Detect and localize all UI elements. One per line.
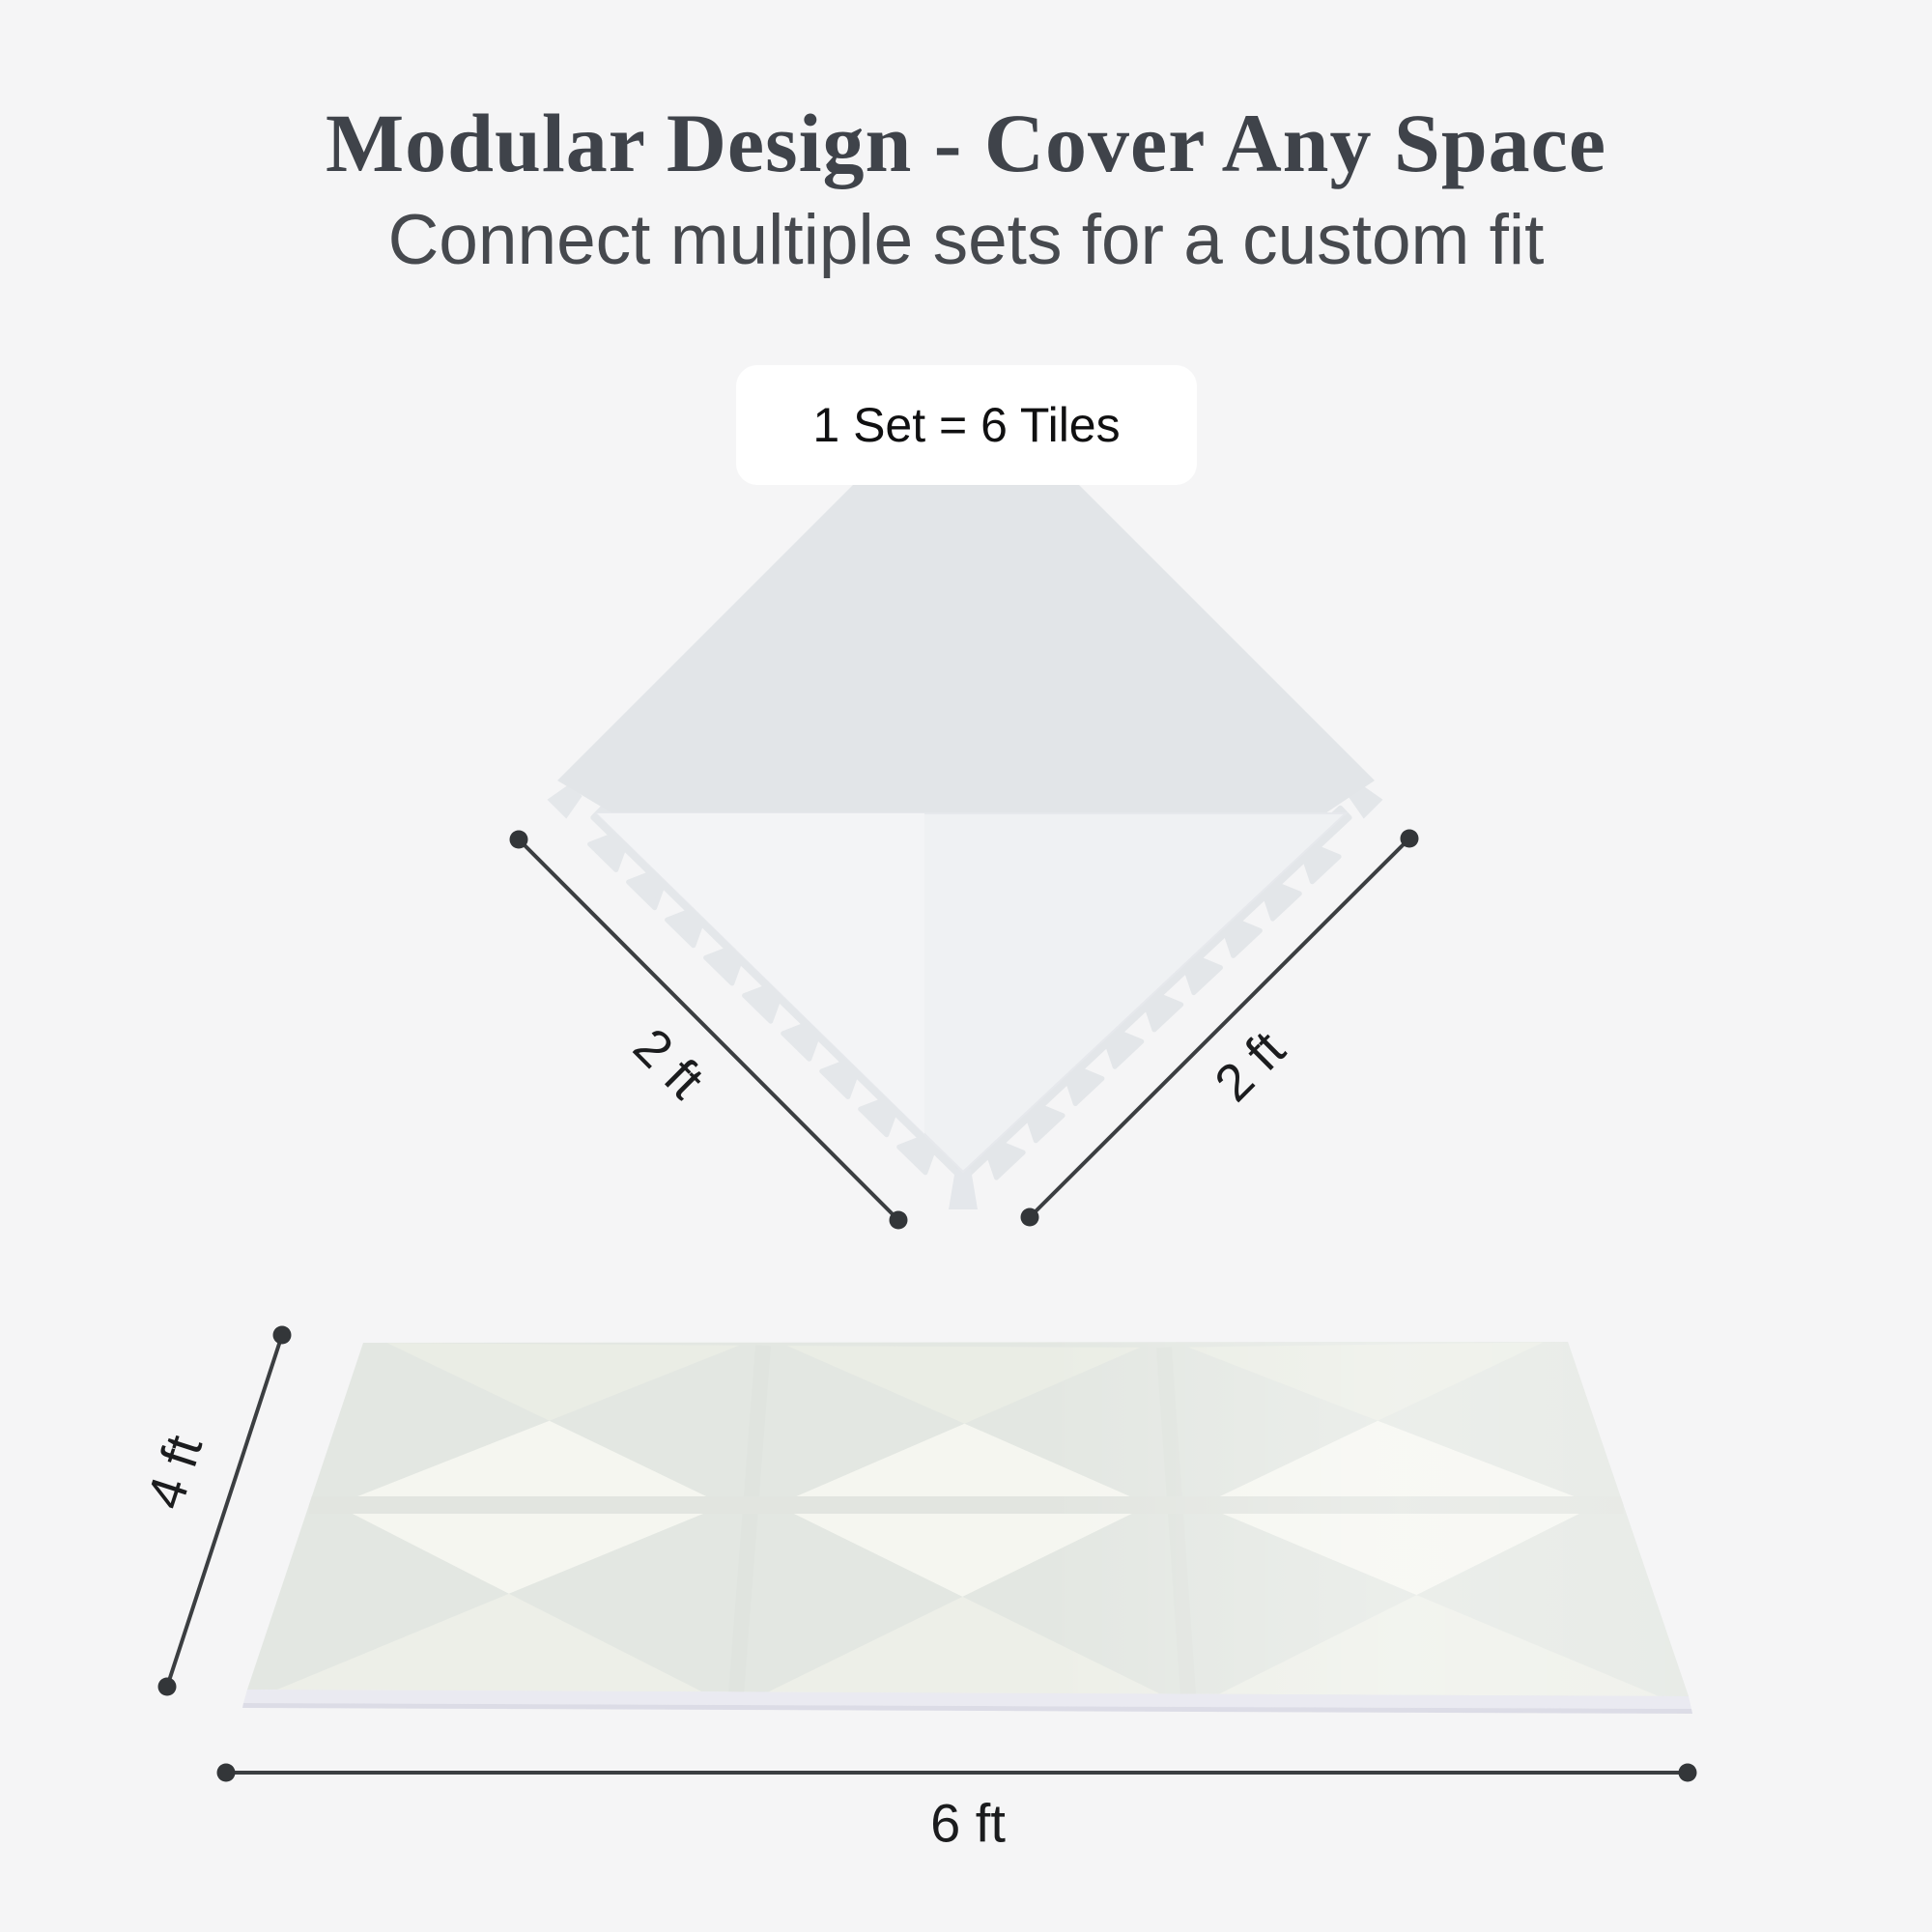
svg-text:6 ft: 6 ft <box>930 1793 1006 1854</box>
svg-text:4 ft: 4 ft <box>136 1429 213 1516</box>
svg-text:2 ft: 2 ft <box>622 1017 714 1109</box>
svg-text:2 ft: 2 ft <box>1204 1020 1295 1112</box>
